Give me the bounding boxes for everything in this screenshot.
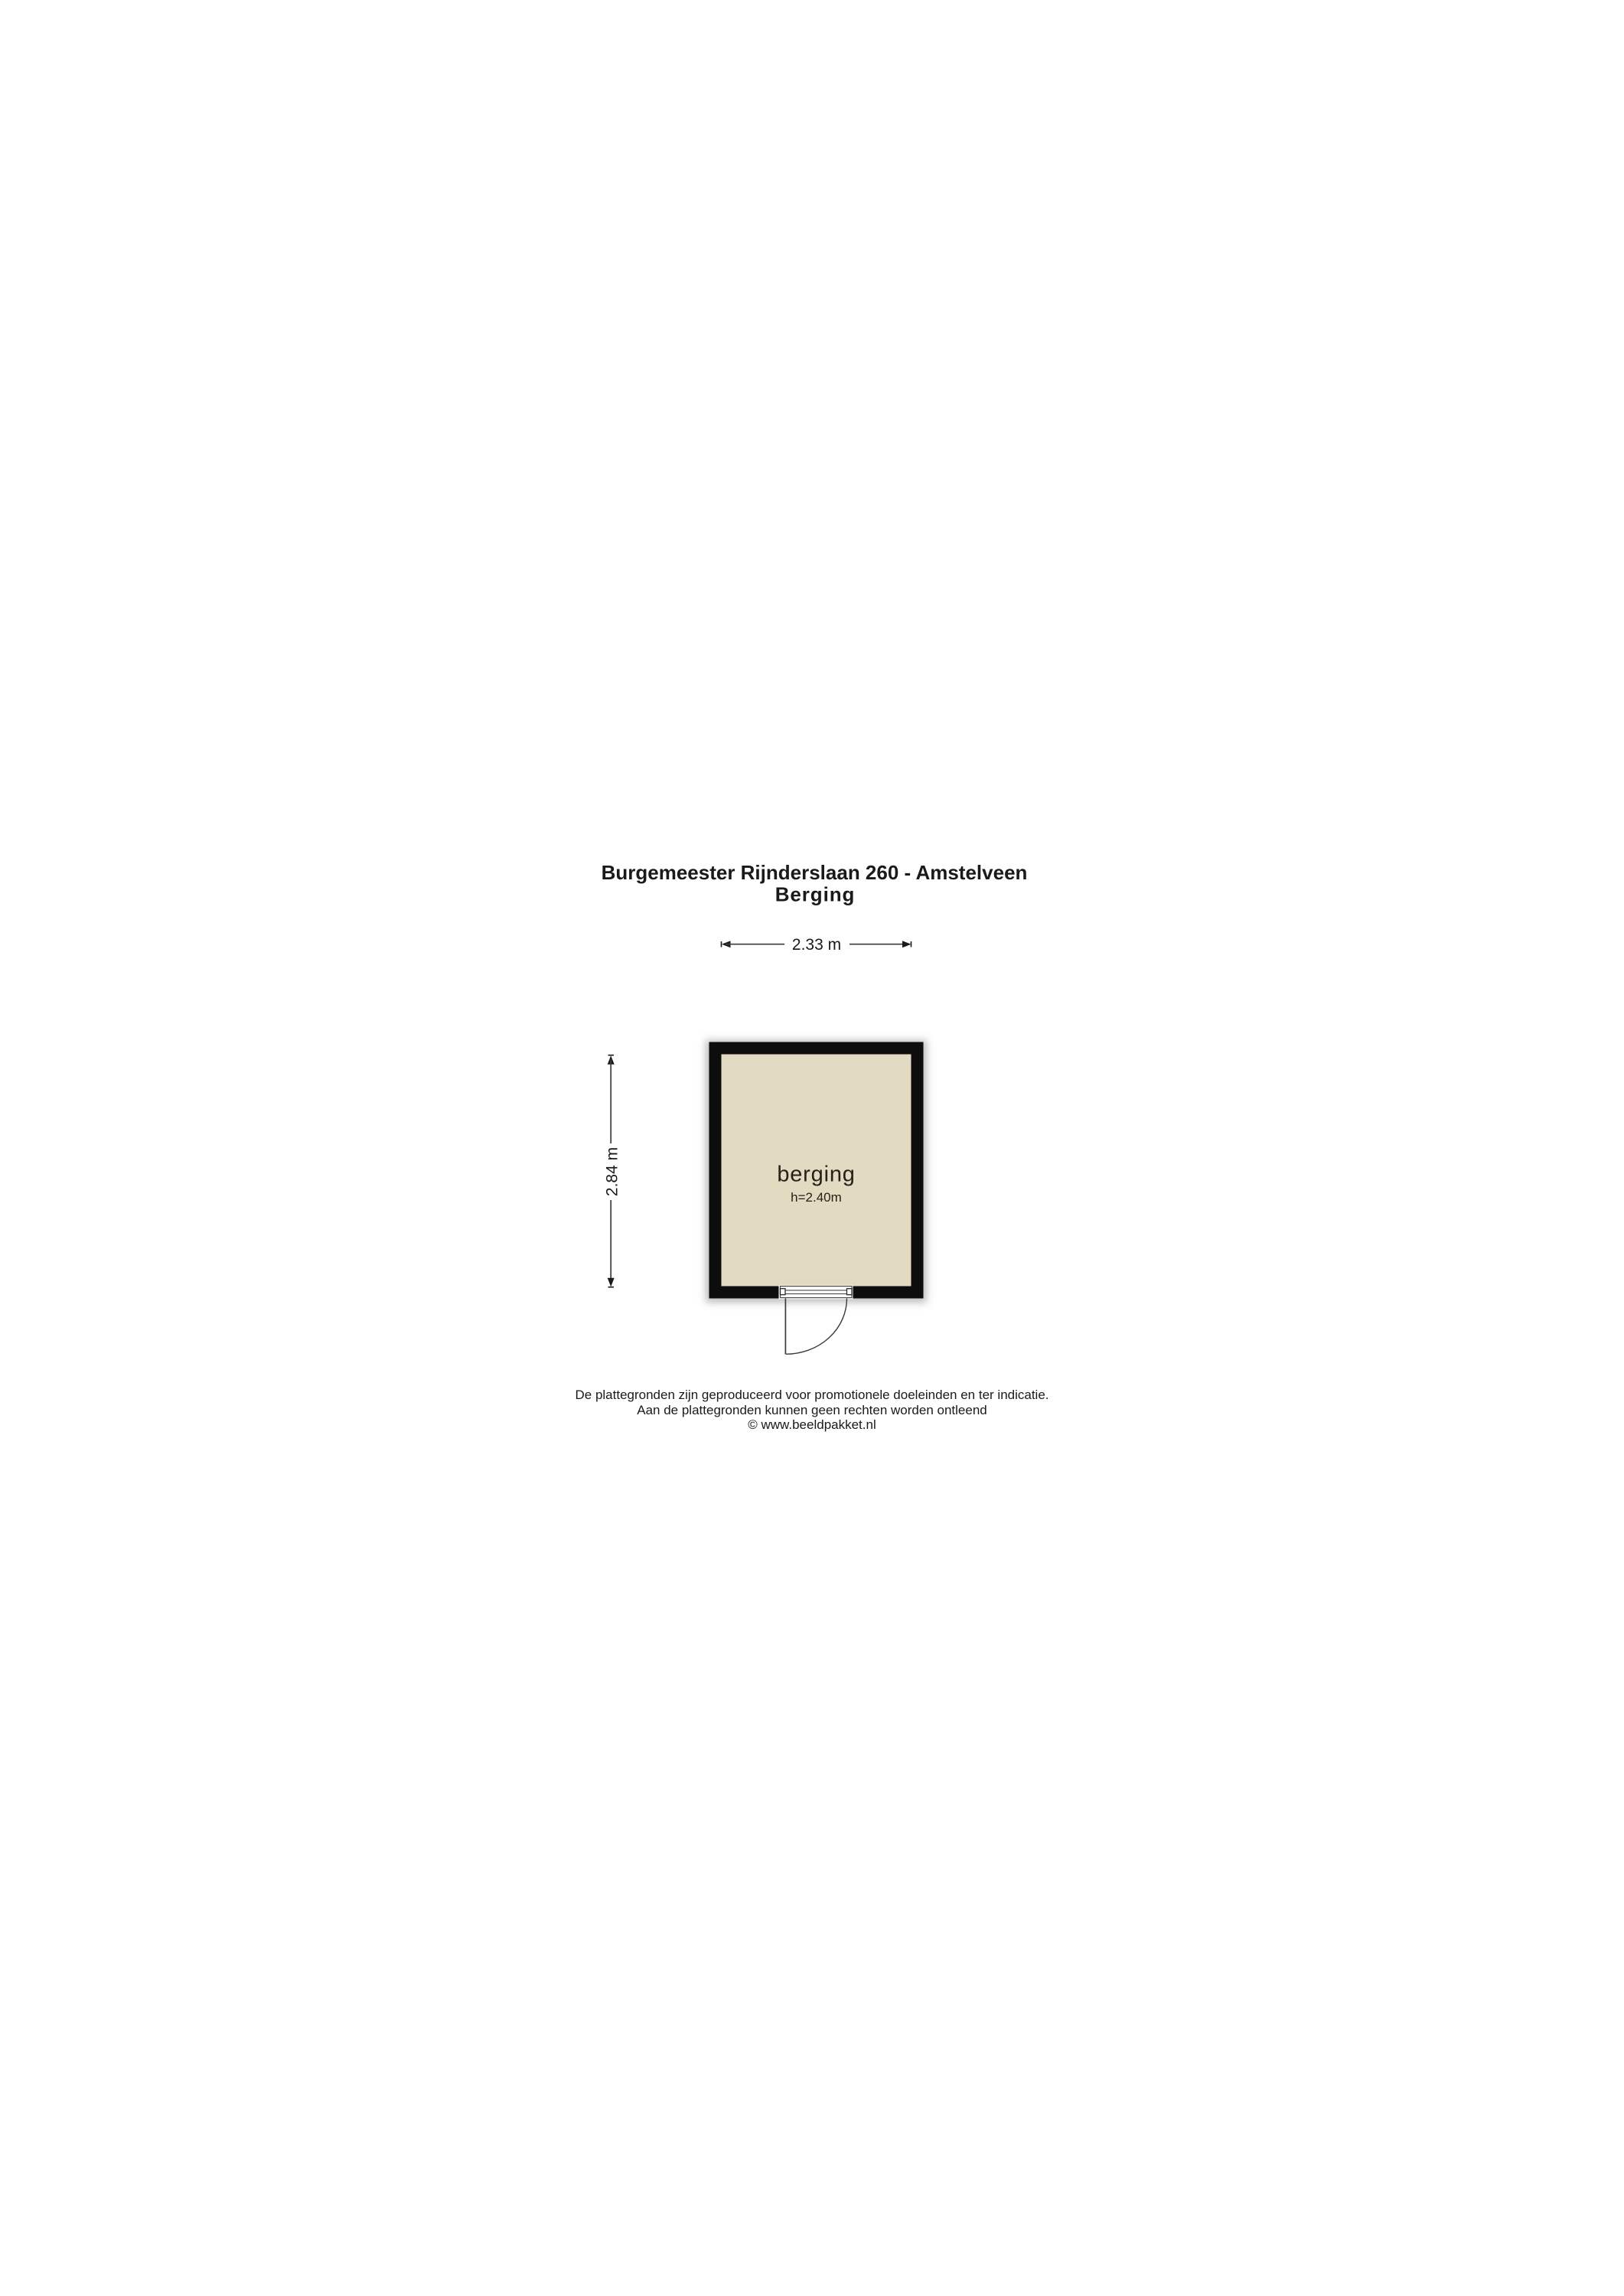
svg-text:h=2.40m: h=2.40m	[791, 1190, 842, 1205]
svg-text:© www.beeldpakket.nl: © www.beeldpakket.nl	[748, 1417, 876, 1432]
svg-text:Berging: Berging	[775, 883, 856, 906]
svg-text:De plattegronden zijn geproduc: De plattegronden zijn geproduceerd voor …	[575, 1388, 1048, 1402]
svg-text:Burgemeester Rijnderslaan 260: Burgemeester Rijnderslaan 260 - Amstelve…	[602, 861, 1028, 884]
svg-text:2.84 m: 2.84 m	[604, 1147, 621, 1196]
svg-text:2.33 m: 2.33 m	[792, 936, 841, 954]
svg-text:Aan de plattegronden kunnen ge: Aan de plattegronden kunnen geen rechten…	[637, 1403, 986, 1417]
svg-text:berging: berging	[777, 1163, 855, 1187]
